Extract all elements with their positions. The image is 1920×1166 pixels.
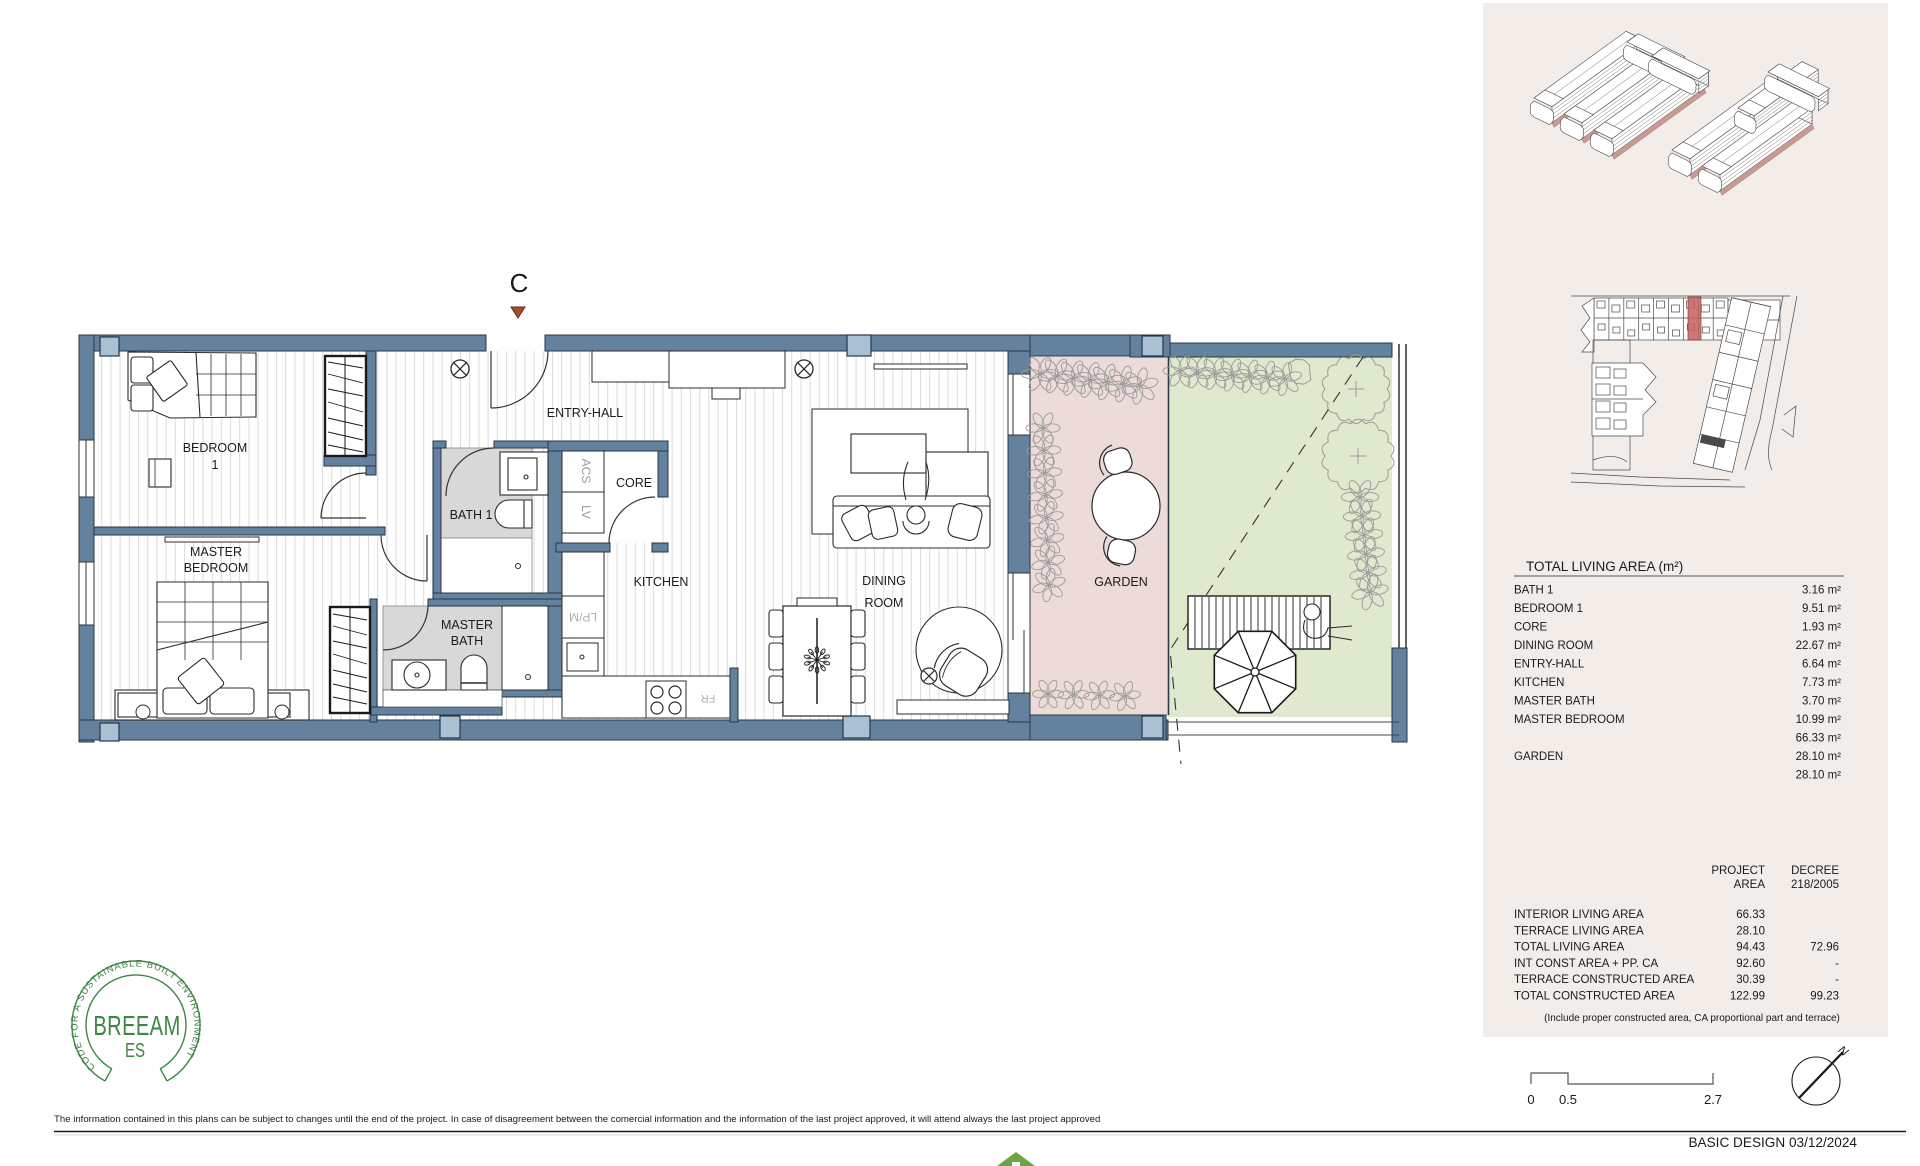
svg-text:KITCHEN: KITCHEN xyxy=(634,575,689,589)
svg-text:ENTRY-HALL: ENTRY-HALL xyxy=(547,406,623,420)
svg-text:28.10 m²: 28.10 m² xyxy=(1796,770,1842,782)
svg-text:C: C xyxy=(510,268,529,298)
svg-text:ROOM: ROOM xyxy=(865,596,904,610)
svg-text:1.93 m²: 1.93 m² xyxy=(1802,622,1841,634)
svg-text:INT CONST AREA + PP. CA: INT CONST AREA + PP. CA xyxy=(1514,958,1658,970)
svg-text:BEDROOM 1: BEDROOM 1 xyxy=(1514,603,1583,615)
svg-text:-: - xyxy=(1835,974,1839,986)
svg-text:1: 1 xyxy=(212,458,219,472)
svg-text:-: - xyxy=(1835,958,1839,970)
svg-text:2.7: 2.7 xyxy=(1704,1092,1722,1107)
svg-text:MASTER BATH: MASTER BATH xyxy=(1514,696,1595,708)
svg-text:GARDEN: GARDEN xyxy=(1514,751,1563,763)
svg-text:92.60: 92.60 xyxy=(1736,958,1765,970)
svg-text:The information contained in t: The information contained in this plans … xyxy=(54,1114,1100,1125)
svg-text:72.96: 72.96 xyxy=(1810,942,1839,954)
svg-text:FR: FR xyxy=(701,692,716,704)
svg-text:MASTER: MASTER xyxy=(190,545,242,559)
svg-text:122.99: 122.99 xyxy=(1730,991,1765,1003)
svg-text:BREEAM: BREEAM xyxy=(93,1011,180,1042)
svg-text:AREA: AREA xyxy=(1734,879,1766,891)
svg-text:BATH 1: BATH 1 xyxy=(1514,585,1553,597)
svg-text:(Include proper constructed ar: (Include proper constructed area, CA pro… xyxy=(1544,1013,1840,1024)
svg-text:DINING: DINING xyxy=(862,574,906,588)
svg-text:TOTAL LIVING AREA: TOTAL LIVING AREA xyxy=(1514,942,1625,954)
svg-text:28.10 m²: 28.10 m² xyxy=(1796,751,1842,763)
svg-text:INTERIOR LIVING AREA: INTERIOR LIVING AREA xyxy=(1514,909,1644,921)
svg-text:6.64 m²: 6.64 m² xyxy=(1802,659,1841,671)
svg-text:3.70 m²: 3.70 m² xyxy=(1802,696,1841,708)
svg-text:28.10: 28.10 xyxy=(1736,925,1765,937)
svg-text:ENTRY-HALL: ENTRY-HALL xyxy=(1514,659,1585,671)
svg-text:CORE: CORE xyxy=(1514,622,1548,634)
svg-text:9.51 m²: 9.51 m² xyxy=(1802,603,1841,615)
svg-text:218/2005: 218/2005 xyxy=(1791,879,1839,891)
svg-text:ACS: ACS xyxy=(579,459,593,484)
svg-text:30.39: 30.39 xyxy=(1736,974,1765,986)
svg-text:KITCHEN: KITCHEN xyxy=(1514,677,1564,689)
svg-text:TERRACE LIVING AREA: TERRACE LIVING AREA xyxy=(1514,925,1644,937)
svg-text:0: 0 xyxy=(1527,1092,1534,1107)
svg-text:BATH: BATH xyxy=(451,634,483,648)
svg-text:MASTER BEDROOM: MASTER BEDROOM xyxy=(1514,714,1625,726)
svg-text:94.43: 94.43 xyxy=(1736,942,1765,954)
svg-text:TOTAL LIVING AREA (m²): TOTAL LIVING AREA (m²) xyxy=(1526,559,1683,574)
svg-text:0.5: 0.5 xyxy=(1559,1092,1577,1107)
svg-text:MASTER: MASTER xyxy=(441,618,493,632)
svg-text:ES: ES xyxy=(125,1039,145,1062)
svg-text:CORE: CORE xyxy=(616,476,652,490)
svg-text:3.16 m²: 3.16 m² xyxy=(1802,585,1841,597)
svg-text:DECREE: DECREE xyxy=(1791,865,1839,877)
svg-text:LV: LV xyxy=(579,505,593,519)
svg-text:66.33 m²: 66.33 m² xyxy=(1796,733,1842,745)
svg-text:TOTAL CONSTRUCTED AREA: TOTAL CONSTRUCTED AREA xyxy=(1514,991,1675,1003)
svg-text:99.23: 99.23 xyxy=(1810,991,1839,1003)
svg-text:BEDROOM: BEDROOM xyxy=(183,441,248,455)
svg-text:DINING ROOM: DINING ROOM xyxy=(1514,640,1593,652)
svg-text:7.73 m²: 7.73 m² xyxy=(1802,677,1841,689)
svg-text:10.99 m²: 10.99 m² xyxy=(1796,714,1842,726)
svg-text:PROJECT: PROJECT xyxy=(1711,865,1765,877)
svg-text:GARDEN: GARDEN xyxy=(1094,575,1147,589)
svg-text:BEDROOM: BEDROOM xyxy=(184,561,249,575)
svg-text:TERRACE CONSTRUCTED AREA: TERRACE CONSTRUCTED AREA xyxy=(1514,974,1695,986)
svg-text:BATH 1: BATH 1 xyxy=(450,508,493,522)
svg-text:66.33: 66.33 xyxy=(1736,909,1765,921)
svg-text:BASIC DESIGN 03/12/2024: BASIC DESIGN 03/12/2024 xyxy=(1688,1135,1857,1150)
svg-text:LP/M: LP/M xyxy=(569,610,597,624)
svg-text:22.67 m²: 22.67 m² xyxy=(1796,640,1842,652)
